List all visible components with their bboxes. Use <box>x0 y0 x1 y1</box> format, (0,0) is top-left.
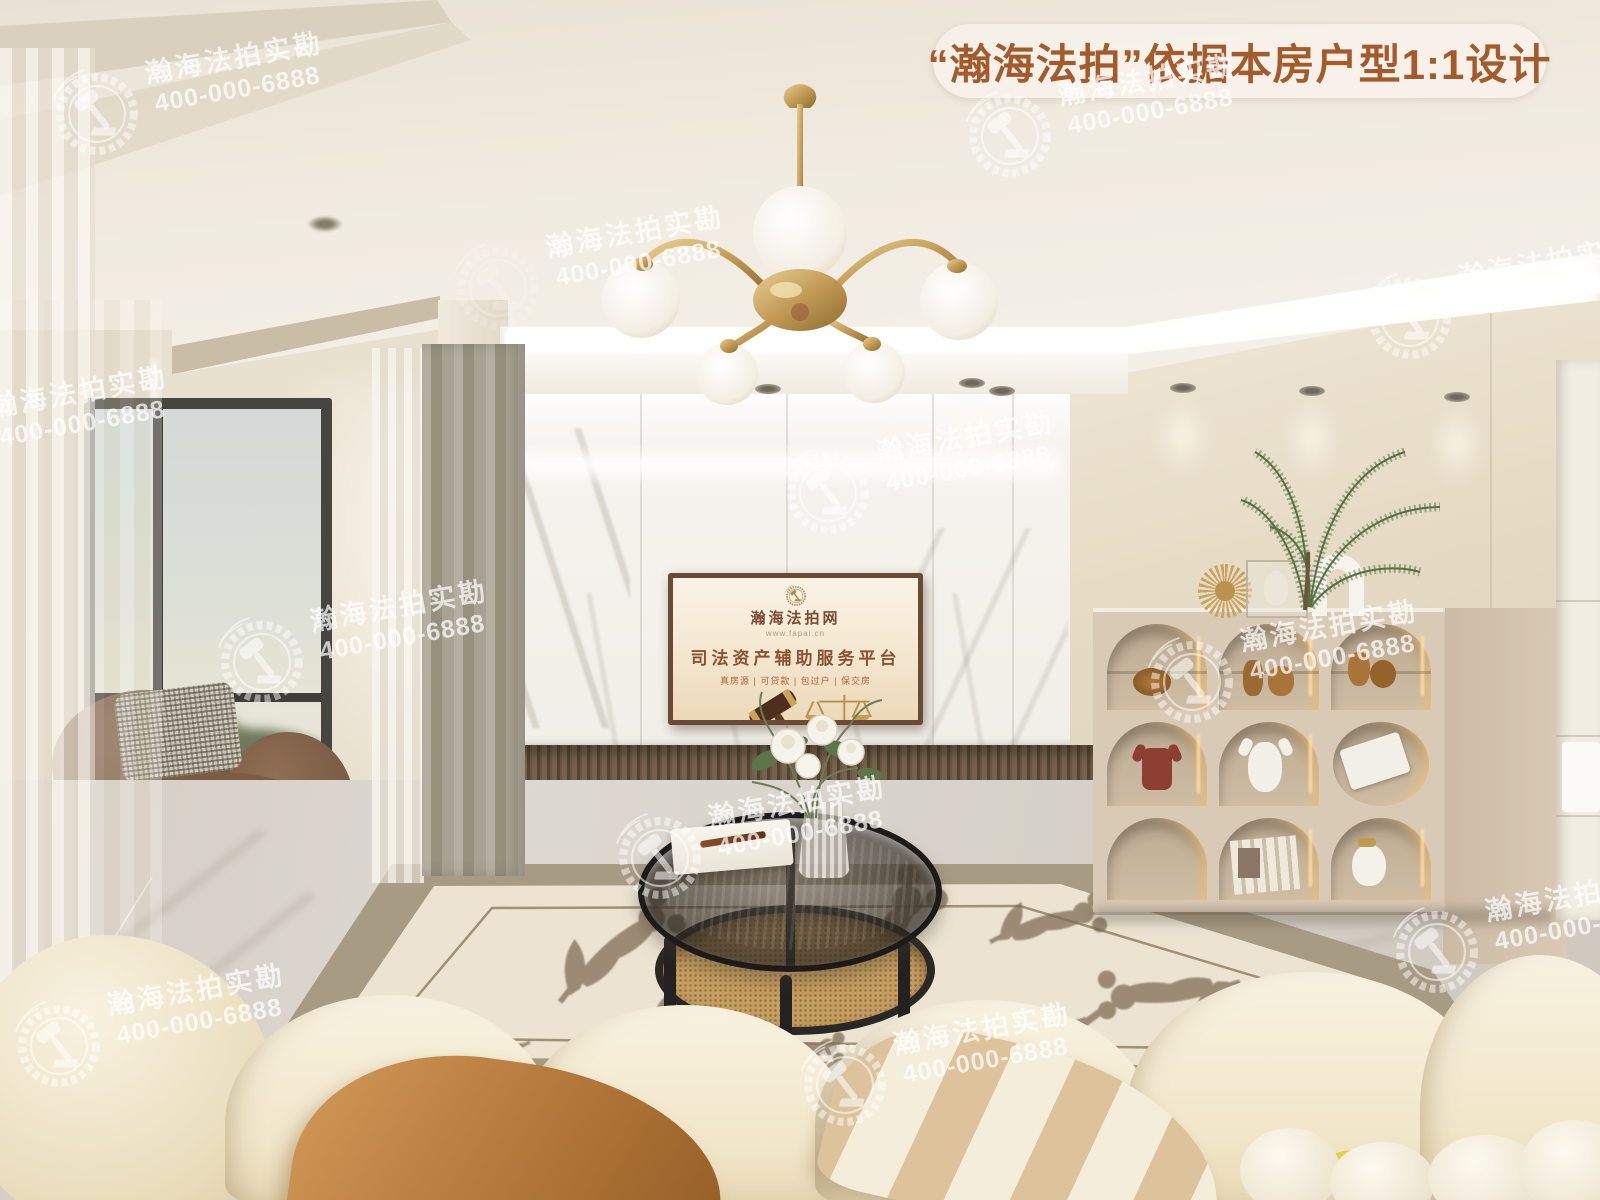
flower-bouquet <box>700 690 930 820</box>
banner-text: “瀚海法拍”依据本房户型1:1设计 <box>928 31 1552 92</box>
tv-brand-name: 瀚海法拍网 <box>673 607 918 628</box>
tv-tagline: 真房源 | 可贷款 | 包过户 | 保交房 <box>673 674 918 687</box>
white-duck-figurine <box>1352 844 1386 886</box>
wall-washer-glow <box>1156 396 1210 476</box>
brass-figurine <box>1268 666 1294 696</box>
gold-chandelier <box>580 68 1020 413</box>
white-yeti-figurine <box>1248 742 1282 792</box>
potted-fern-plant <box>1235 412 1460 612</box>
magazine-cover-photo <box>1238 848 1260 878</box>
grey-curtain <box>422 344 525 876</box>
gold-sun-disc-center <box>1215 581 1235 601</box>
cabinet-panel-line <box>1556 735 1600 737</box>
design-claim-banner: “瀚海法拍”依据本房户型1:1设计 <box>933 24 1546 98</box>
recessed-downlight <box>1170 383 1196 393</box>
living-room-render: 瀚海法拍网 www.fapai.cn 司法资产辅助服务平台 真房源 | 可贷款 … <box>0 0 1600 1200</box>
brass-figurine <box>1133 668 1171 696</box>
cabinet-panel-line <box>1556 815 1600 817</box>
sheer-curtain <box>0 48 95 1010</box>
recessed-downlight <box>1299 386 1325 396</box>
sheer-curtain <box>372 348 424 883</box>
tv-brand-emblem-icon <box>785 585 807 607</box>
brass-figurine <box>1243 660 1263 696</box>
kitchen-cabinet <box>1556 360 1600 920</box>
counter-appliance <box>1562 742 1600 812</box>
tv-slogan-title: 司法资产辅助服务平台 <box>673 644 918 669</box>
recessed-downlight <box>1444 392 1470 402</box>
red-bear-figurine <box>1142 748 1172 790</box>
cabinet-panel-line <box>1556 600 1600 602</box>
cabinet-shadow <box>1093 908 1553 924</box>
gold-hat <box>1358 838 1376 847</box>
recessed-downlight <box>308 216 342 232</box>
tv-website: www.fapai.cn <box>673 629 918 638</box>
brass-duck <box>1348 652 1370 686</box>
brass-duck <box>1370 660 1396 688</box>
